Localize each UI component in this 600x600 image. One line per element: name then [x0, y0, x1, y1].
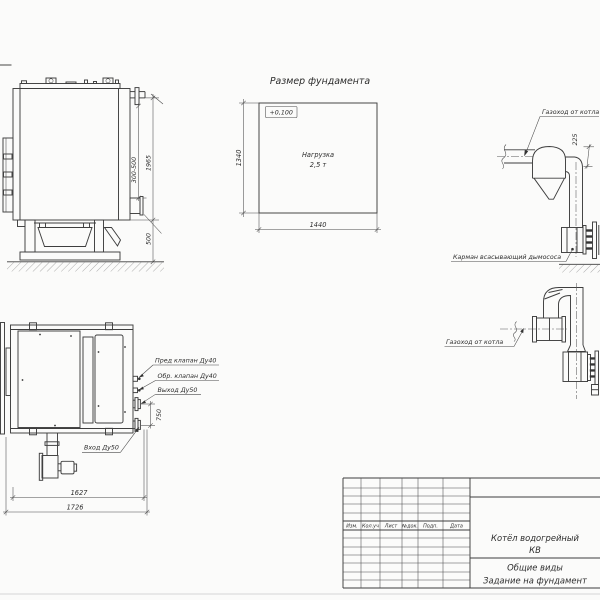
col-koluch: Кол.уч: [362, 524, 379, 530]
dim-flue-offset: 225: [572, 133, 579, 145]
flue-elbow-pipe: [566, 157, 583, 257]
col-data: Дата: [449, 524, 463, 530]
plan-panel-right: [95, 335, 123, 423]
drawing-canvas: 1965 300-500 500 Размер фундамента +0,10…: [0, 0, 600, 600]
elevation-mark: +0,100: [270, 109, 293, 116]
foundation-plan: Размер фундамента +0,100 Нагрузка 2,5 т …: [235, 76, 381, 233]
ground-right-upper: [559, 264, 600, 272]
cyclone: [533, 147, 566, 200]
side-drain-stub: [130, 197, 162, 234]
load-label-line1: Нагрузка: [302, 151, 334, 159]
pump-motor: [61, 461, 74, 474]
load-label-line2: 2,5 т: [310, 161, 327, 169]
side-view-dimensions: 1965 300-500 500: [122, 94, 163, 264]
dim-nozzle-range: 300-500: [131, 157, 138, 183]
flue-upper-view: Газоход от котла 225: [451, 109, 600, 273]
plan-panel-mid: [83, 337, 93, 423]
product-name-line1: Котёл водогрейный: [491, 533, 579, 543]
top-outlet-nozzle: [130, 88, 145, 105]
flue-lower-duct-label: Газоход от котла: [446, 339, 503, 346]
flue-lower-view: Газоход от котла: [445, 283, 599, 399]
check-valve-stub: [133, 388, 141, 393]
title-block: Изм. Кол.уч Лист №док. Подп. Дата Котёл …: [343, 478, 600, 588]
product-name-line2: КВ: [529, 545, 541, 555]
dim-base-height: 500: [146, 233, 153, 245]
ash-hopper: [38, 228, 92, 247]
dim-spacing-group: 750: [141, 401, 163, 429]
outlet-flange: [133, 398, 140, 411]
leader-arrow: [524, 150, 528, 157]
col-podp: Подп.: [423, 524, 438, 530]
dim-foundation-depth: 1340: [235, 150, 243, 167]
doc-name-line2: Задание на фундамент: [483, 576, 588, 586]
doc-name-line1: Общие виды: [507, 563, 563, 573]
flue-upper-duct-label: Газоход от котла: [542, 109, 599, 116]
dim-foundation-width: 1440: [310, 221, 327, 229]
plan-panel-left: [18, 331, 80, 428]
label-inlet: Вход Ду50: [84, 445, 119, 452]
boiler-base: [18, 220, 121, 260]
label-check-valve: Обр. клапан Ду40: [158, 372, 217, 380]
pump-assembly: [39, 433, 76, 480]
boiler-top-plate: [20, 84, 120, 89]
ground-left: [7, 262, 164, 272]
boiler-body: [13, 89, 130, 221]
foundation-title: Размер фундамента: [270, 76, 371, 87]
col-izm: Изм.: [346, 524, 358, 530]
exhauster-connection: [563, 351, 599, 395]
boiler-side-view: 1965 300-500 500: [3, 78, 164, 272]
plan-body: [11, 325, 134, 433]
dim-length-inner: 1627: [71, 489, 89, 497]
drawing-sheet: 1965 300-500 500 Размер фундамента +0,10…: [0, 0, 600, 600]
side-left-panel: [3, 138, 13, 212]
label-safety-valve: Пред клапан Ду40: [155, 358, 216, 365]
dim-pipe-spacing: 750: [156, 409, 163, 421]
label-outlet: Выход Ду50: [158, 387, 198, 394]
ash-chute: [105, 228, 121, 247]
dim-total-height: 1965: [146, 155, 153, 171]
col-ndok: №док.: [401, 524, 418, 530]
col-list: Лист: [384, 524, 398, 530]
dim-225-group: 225: [572, 133, 594, 168]
break-line: [513, 322, 516, 342]
boiler-plan-view: Пред клапан Ду40 Обр. клапан Ду40 Выход …: [1, 323, 220, 516]
dim-length-outer: 1726: [67, 503, 84, 511]
pocket-label: Карман всасывающий дымососа: [453, 254, 561, 261]
exhauster-pocket: [562, 222, 599, 259]
